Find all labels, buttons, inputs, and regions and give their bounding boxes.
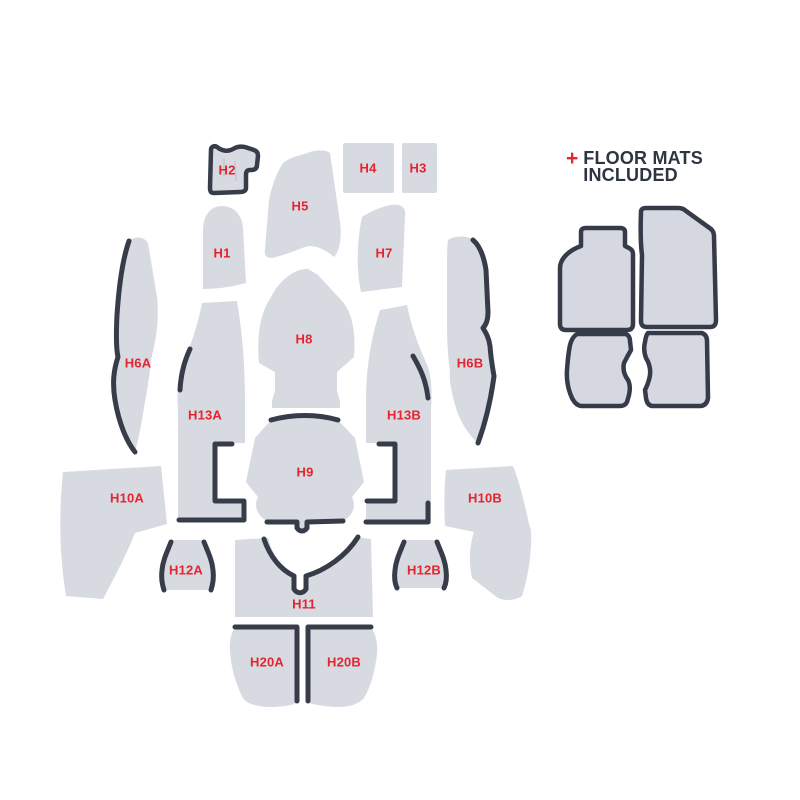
plus-icon: + xyxy=(566,150,578,168)
floor-mats-heading: + FLOOR MATS INCLUDED xyxy=(566,150,703,184)
front-passenger-mat xyxy=(641,208,716,327)
piece-h11-label: H11 xyxy=(292,597,316,612)
piece-h10a-label: H10A xyxy=(110,491,144,506)
piece-h5-label: H5 xyxy=(291,199,308,214)
piece-h20a-label: H20A xyxy=(250,655,284,670)
rear-passenger-mat xyxy=(644,333,708,406)
piece-h10a-shape xyxy=(60,466,167,599)
piece-h13a-label: H13A xyxy=(188,408,222,423)
front-driver-mat xyxy=(560,228,633,330)
floor-mats-heading-text: FLOOR MATS INCLUDED xyxy=(583,150,703,184)
piece-h20b-label: H20B xyxy=(327,655,361,670)
piece-h10b-label: H10B xyxy=(468,491,502,506)
piece-h4-label: H4 xyxy=(359,161,376,176)
piece-h13b-label: H13B xyxy=(387,408,421,423)
piece-h12a-label: H12A xyxy=(169,563,203,578)
piece-h10b-shape xyxy=(444,466,531,600)
piece-h13b-notch-outline xyxy=(367,444,395,501)
floor-mats-group xyxy=(560,208,716,406)
piece-h12b-label: H12B xyxy=(407,563,441,578)
piece-h9-tab-outline xyxy=(267,521,343,531)
piece-h6b-label: H6B xyxy=(457,356,484,371)
piece-h3-label: H3 xyxy=(409,161,426,176)
piece-h6a-label: H6A xyxy=(125,356,152,371)
pieces-illustration xyxy=(0,0,800,800)
piece-h1-label: H1 xyxy=(213,246,230,261)
piece-h9-label: H9 xyxy=(296,465,313,480)
carpet-kit-diagram: H2 H4 H3 H5 H1 H7 H6A H6B H8 H13A H13B H… xyxy=(0,0,800,800)
piece-h13a-notch-outline xyxy=(215,444,244,501)
piece-h2-label: H2 xyxy=(218,163,235,178)
piece-h8-label: H8 xyxy=(295,332,312,347)
floor-mats-heading-line2: INCLUDED xyxy=(583,167,703,184)
piece-h7-label: H7 xyxy=(375,246,392,261)
rear-driver-mat xyxy=(567,334,631,406)
